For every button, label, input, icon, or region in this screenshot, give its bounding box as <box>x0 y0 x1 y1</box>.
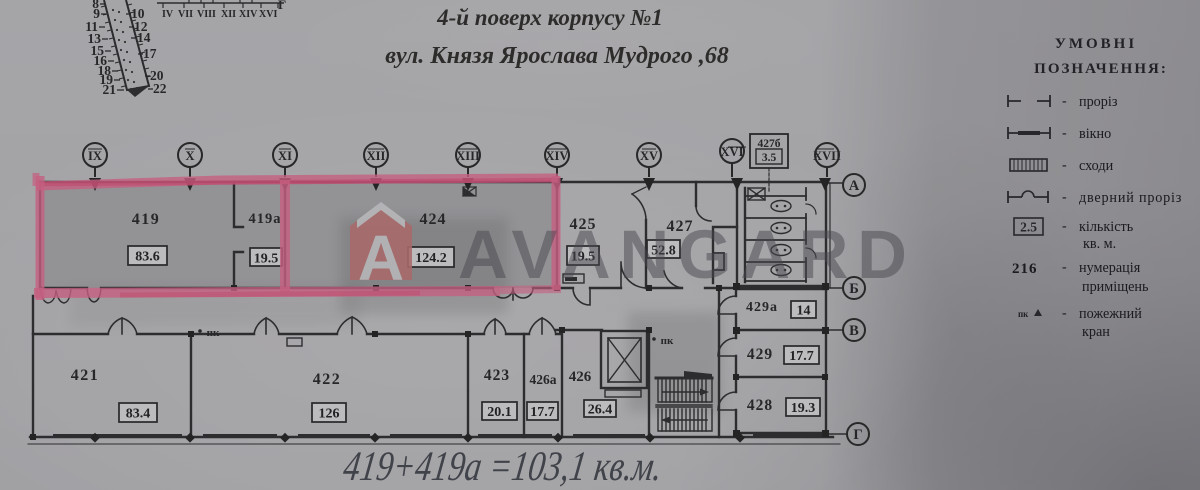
svg-text:423: 423 <box>484 367 510 384</box>
svg-text:-: - <box>1062 126 1067 141</box>
svg-text:126: 126 <box>319 407 340 422</box>
svg-text:ПОЗНАЧЕННЯ:: ПОЗНАЧЕННЯ: <box>1034 61 1168 77</box>
svg-text:14: 14 <box>797 304 811 319</box>
svg-text:14: 14 <box>137 30 151 45</box>
svg-text:19.3: 19.3 <box>791 401 816 416</box>
svg-text:AVANGARD: AVANGARD <box>458 216 914 293</box>
svg-text:429: 429 <box>747 346 773 363</box>
svg-text:Г: Г <box>853 427 862 443</box>
svg-text:419: 419 <box>132 211 161 228</box>
svg-text:-: - <box>1062 219 1067 234</box>
svg-text:3.5: 3.5 <box>762 152 777 164</box>
svg-text:-: - <box>1062 158 1067 173</box>
svg-text:4-й поверх корпусу №1: 4-й поверх корпусу №1 <box>436 5 663 30</box>
svg-text:426: 426 <box>569 369 592 385</box>
svg-text:кв. м.: кв. м. <box>1083 236 1116 252</box>
svg-text:19.5: 19.5 <box>254 252 279 267</box>
svg-text:X: X <box>185 149 194 163</box>
svg-text:УМОВНІ: УМОВНІ <box>1055 36 1137 52</box>
svg-text:419+419а =103,1 кв.м.: 419+419а =103,1 кв.м. <box>341 443 666 490</box>
svg-text:424: 424 <box>420 211 447 228</box>
svg-text:XI: XI <box>278 149 292 163</box>
svg-text:-: - <box>1062 260 1067 275</box>
svg-text:426а: 426а <box>530 372 557 387</box>
svg-text:пк: пк <box>207 327 220 339</box>
svg-text:IV: IV <box>162 9 174 20</box>
svg-text:кран: кран <box>1082 324 1110 340</box>
svg-text:Г: Г <box>278 0 286 12</box>
svg-text:XIII: XIII <box>456 149 480 163</box>
svg-text:кількість: кількість <box>1079 219 1134 235</box>
svg-text:216: 216 <box>1012 261 1038 277</box>
svg-text:вул. Князя Ярослава Мудрого ,6: вул. Князя Ярослава Мудрого ,68 <box>385 43 729 69</box>
svg-text:нумерація: нумерація <box>1079 260 1141 276</box>
svg-text:A: A <box>358 222 404 294</box>
svg-text:-: - <box>1062 306 1067 321</box>
svg-text:пожежний: пожежний <box>1079 306 1142 322</box>
svg-text:XIV: XIV <box>546 149 569 163</box>
svg-text:-: - <box>1062 94 1067 109</box>
svg-text:428: 428 <box>747 397 773 414</box>
svg-text:пк: пк <box>1018 309 1029 319</box>
svg-text:83.6: 83.6 <box>135 250 160 265</box>
svg-text:17.7: 17.7 <box>789 349 814 364</box>
svg-text:VIII: VIII <box>197 9 216 20</box>
svg-text:VII: VII <box>178 9 193 20</box>
svg-text:проріз: проріз <box>1079 94 1118 110</box>
svg-text:В: В <box>849 323 859 339</box>
svg-text:-: - <box>1062 190 1067 205</box>
svg-text:XVII: XVII <box>813 149 841 163</box>
svg-text:427б: 427б <box>758 138 781 150</box>
svg-text:2.5: 2.5 <box>1020 220 1037 235</box>
svg-text:XII: XII <box>367 149 386 163</box>
svg-text:17: 17 <box>143 46 157 61</box>
svg-text:А: А <box>849 178 860 194</box>
svg-text:сходи: сходи <box>1079 158 1114 174</box>
svg-text:20.1: 20.1 <box>487 405 512 420</box>
svg-text:XIV: XIV <box>239 9 258 20</box>
svg-text:21: 21 <box>103 82 117 97</box>
svg-text:26.4: 26.4 <box>588 403 613 418</box>
svg-text:дверний проріз: дверний проріз <box>1079 190 1182 206</box>
svg-text:124.2: 124.2 <box>415 251 447 266</box>
svg-text:419а: 419а <box>249 211 282 227</box>
svg-text:422: 422 <box>313 371 342 388</box>
svg-text:вікно: вікно <box>1079 126 1111 142</box>
svg-text:17.7: 17.7 <box>530 405 555 420</box>
svg-text:XV: XV <box>640 149 658 163</box>
svg-text:приміщень: приміщень <box>1082 279 1149 295</box>
svg-text:XII: XII <box>221 9 236 20</box>
svg-text:пк: пк <box>661 335 674 347</box>
svg-text:429а: 429а <box>746 300 778 315</box>
svg-text:XVI: XVI <box>259 9 277 20</box>
svg-text:421: 421 <box>71 367 100 384</box>
svg-text:83.4: 83.4 <box>126 407 151 422</box>
svg-text:22: 22 <box>153 81 167 96</box>
svg-text:IX: IX <box>88 149 102 163</box>
